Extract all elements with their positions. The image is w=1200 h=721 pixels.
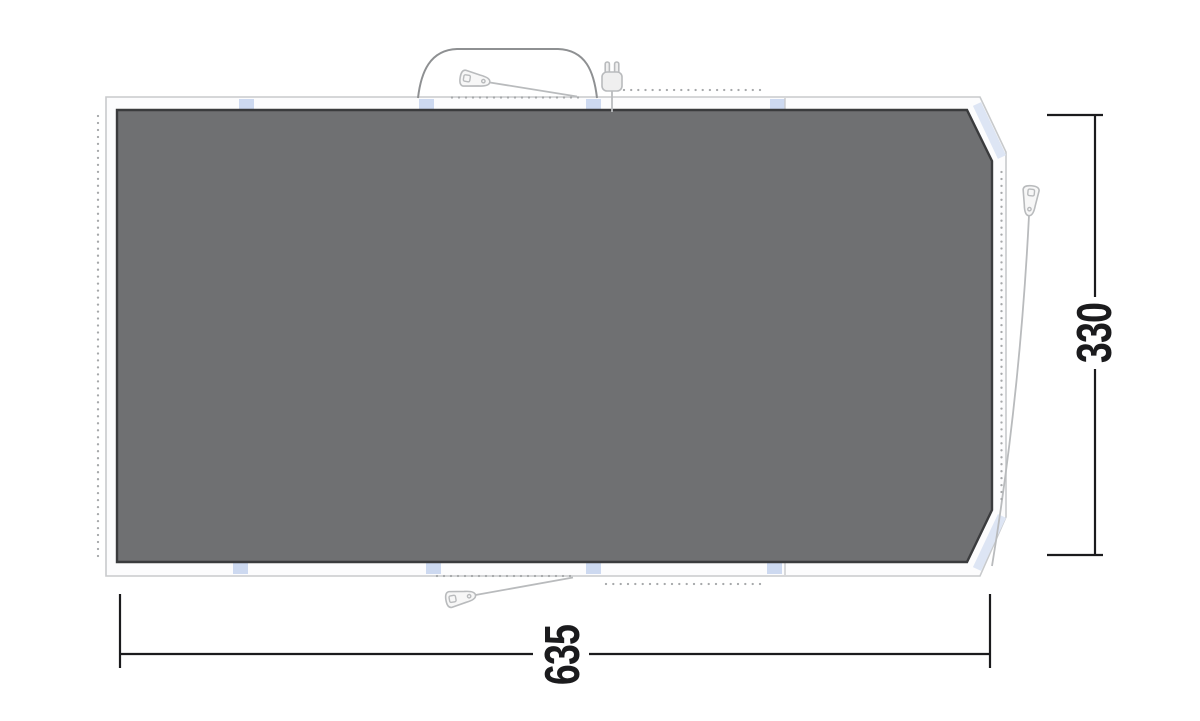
tent-footprint-diagram: 635 330	[0, 0, 1200, 721]
height-dimension: 330	[1047, 115, 1122, 555]
attachment-dots-bottom-right	[605, 583, 761, 585]
guyline-peg-slider-icon-bottom	[445, 587, 477, 608]
floorplan-svg: 635 330	[0, 0, 1200, 721]
door-canopy-outline	[418, 49, 597, 98]
stitch-dots-left-edge	[97, 115, 99, 557]
pegging-tab	[586, 99, 601, 110]
guyline-peg-slider-icon-right	[1021, 185, 1040, 216]
guyline-peg-slider-icon-top	[459, 70, 491, 90]
pegging-tab	[586, 563, 601, 574]
pegging-tab	[767, 563, 782, 574]
pegging-tab	[426, 563, 441, 574]
pegging-tab	[233, 563, 248, 574]
height-dimension-label: 330	[1067, 303, 1122, 363]
pegging-tab	[770, 99, 785, 110]
width-dimension: 635	[120, 594, 990, 685]
attachment-dots-top-right	[623, 89, 761, 91]
inner-floor-panel	[117, 110, 992, 562]
width-dimension-label: 635	[535, 624, 590, 685]
guyline-rope-top	[490, 83, 577, 97]
pegging-tab	[419, 99, 434, 110]
guyline-rope-bottom	[476, 578, 574, 596]
pegging-tab	[239, 99, 254, 110]
